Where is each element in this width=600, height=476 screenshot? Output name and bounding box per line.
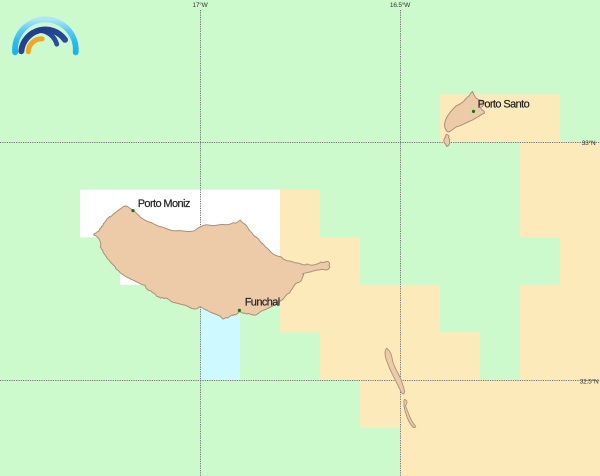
svg-text:32.5°N: 32.5°N: [580, 378, 599, 386]
svg-text:17°W: 17°W: [192, 1, 208, 9]
svg-text:Funchal: Funchal: [245, 297, 280, 309]
svg-text:33°N: 33°N: [582, 139, 596, 147]
svg-text:Porto Moniz: Porto Moniz: [138, 198, 190, 210]
svg-text:16.5°W: 16.5°W: [390, 1, 411, 9]
svg-text:Porto Santo: Porto Santo: [478, 99, 530, 111]
